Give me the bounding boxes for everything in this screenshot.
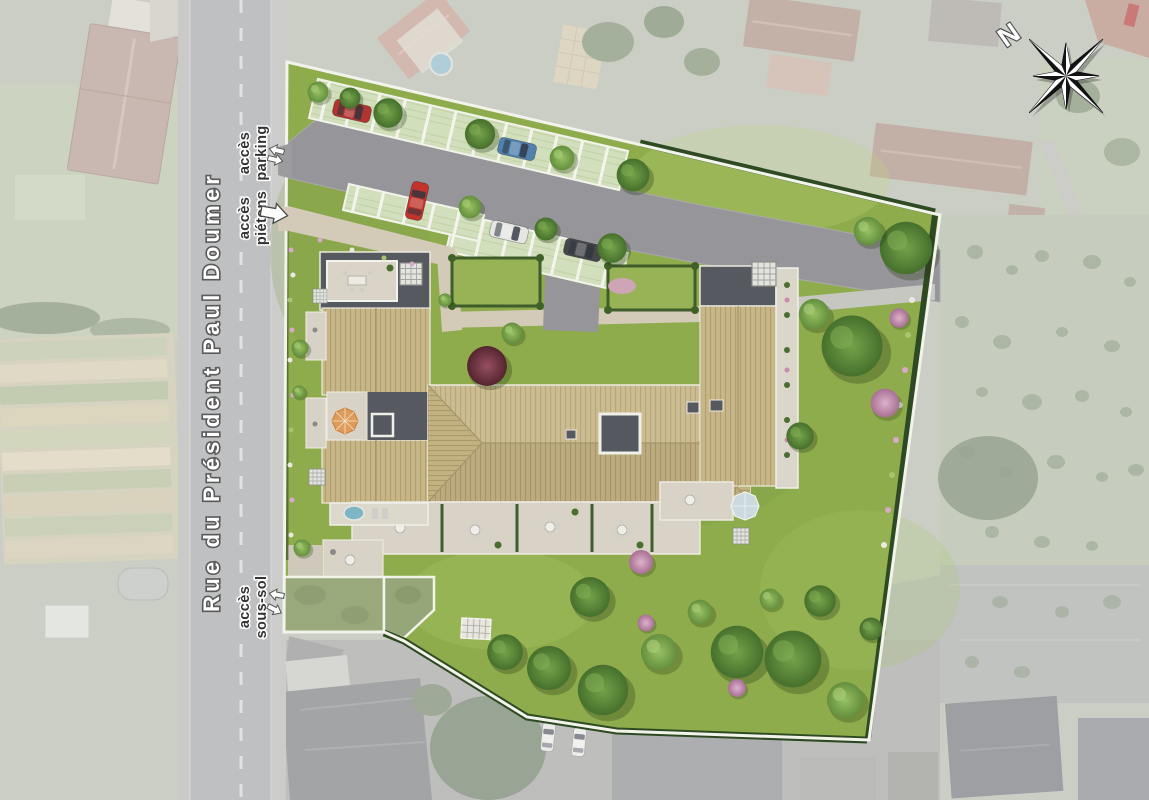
- spa: [344, 506, 364, 520]
- access-pietons-label: accès piétons: [237, 191, 270, 245]
- roof-vent-icon: [566, 430, 576, 439]
- roof-vent-icon: [400, 263, 422, 285]
- street-name-label: Rue du Président Paul Doumer: [199, 172, 224, 612]
- access-soussol-line1: accès: [237, 586, 253, 628]
- access-parking-label: accès parking: [237, 125, 270, 180]
- roof-vent-icon: [309, 469, 325, 485]
- roof-vent-icon: [710, 400, 723, 411]
- access-parking-line1: accès: [237, 132, 253, 174]
- access-pietons-line1: accès: [237, 197, 253, 239]
- aerial-svg: Rue du Président Paul Doumer accès parki…: [0, 0, 1149, 800]
- skylight: [600, 414, 640, 453]
- site-plan: Rue du Président Paul Doumer accès parki…: [0, 0, 1149, 800]
- utility-vent-icon: [733, 528, 749, 544]
- roof-vent-icon: [687, 402, 699, 413]
- roof-vent-icon: [313, 289, 327, 303]
- pergola: [461, 618, 491, 639]
- plot-a: [284, 577, 384, 632]
- utility-vent-icon: [752, 262, 776, 286]
- access-parking-line2: parking: [254, 125, 270, 180]
- skylight: [372, 414, 393, 436]
- access-pietons-line2: piétons: [254, 191, 270, 245]
